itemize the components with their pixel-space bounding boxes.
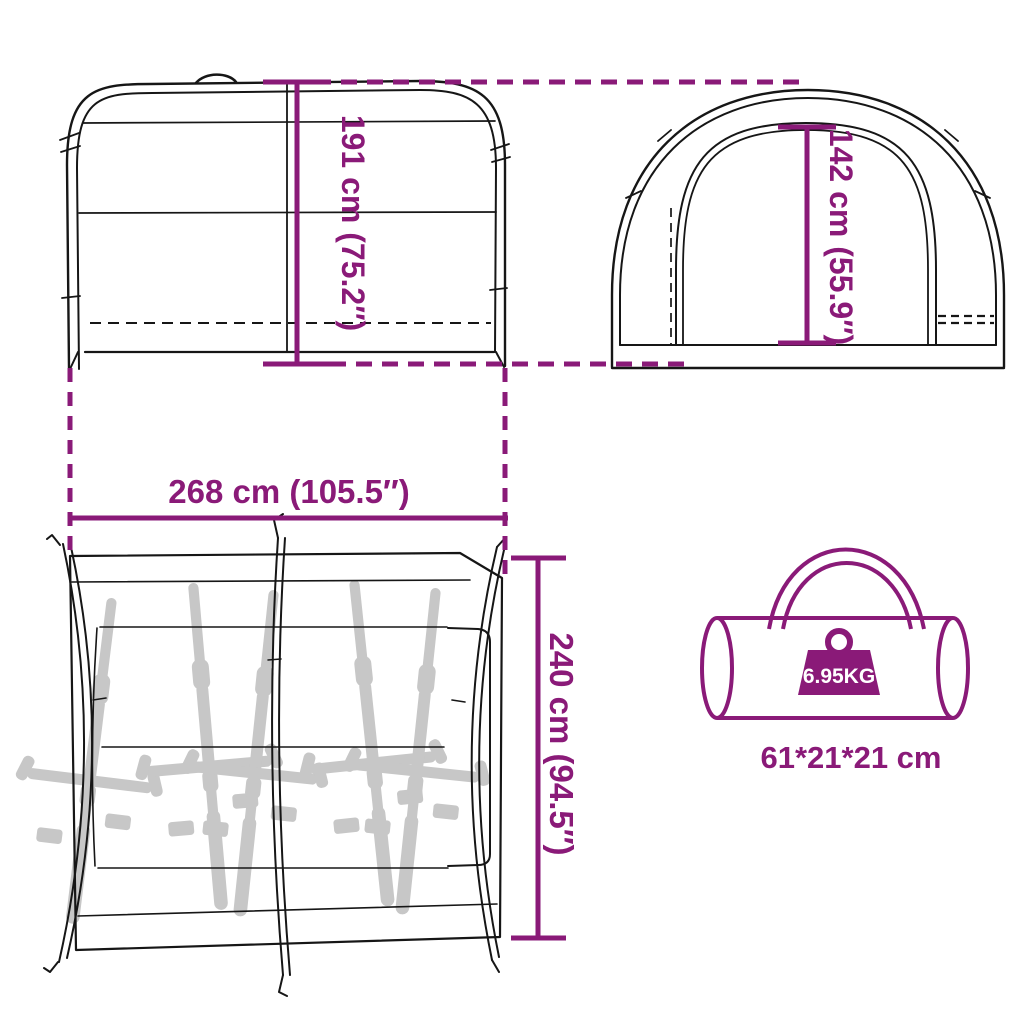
bag-weight-label: 6.95KG (803, 665, 875, 688)
pole-segment-ticks (60, 133, 510, 298)
bike-icon (0, 589, 187, 933)
front-door-height-label: 142 cm (55.9″) (823, 129, 859, 345)
side-view-drawing (60, 75, 510, 369)
roof-strap (196, 75, 236, 83)
floor-plan-drawing (0, 514, 511, 996)
product-dimension-diagram: 191 cm (75.2″) 142 cm (55.9″) 268 cm (10… (0, 0, 1024, 1024)
side-height-dimension: 191 cm (75.2″) (263, 82, 371, 364)
width-dimension: 268 cm (105.5″) (70, 473, 508, 518)
vent-dashed (938, 316, 994, 323)
depth-dimension: 240 cm (94.5″) (511, 558, 580, 938)
bag-size-label: 61*21*21 cm (761, 740, 942, 775)
carry-bag-drawing: 6.95KG 61*21*21 cm (702, 550, 968, 776)
dimension-diagram-page: 191 cm (75.2″) 142 cm (55.9″) 268 cm (10… (0, 0, 1024, 1024)
front-door-height-dimension: 142 cm (55.9″) (778, 127, 859, 345)
width-label: 268 cm (105.5″) (168, 473, 409, 510)
depth-label: 240 cm (94.5″) (543, 632, 580, 855)
side-height-label: 191 cm (75.2″) (335, 115, 371, 331)
